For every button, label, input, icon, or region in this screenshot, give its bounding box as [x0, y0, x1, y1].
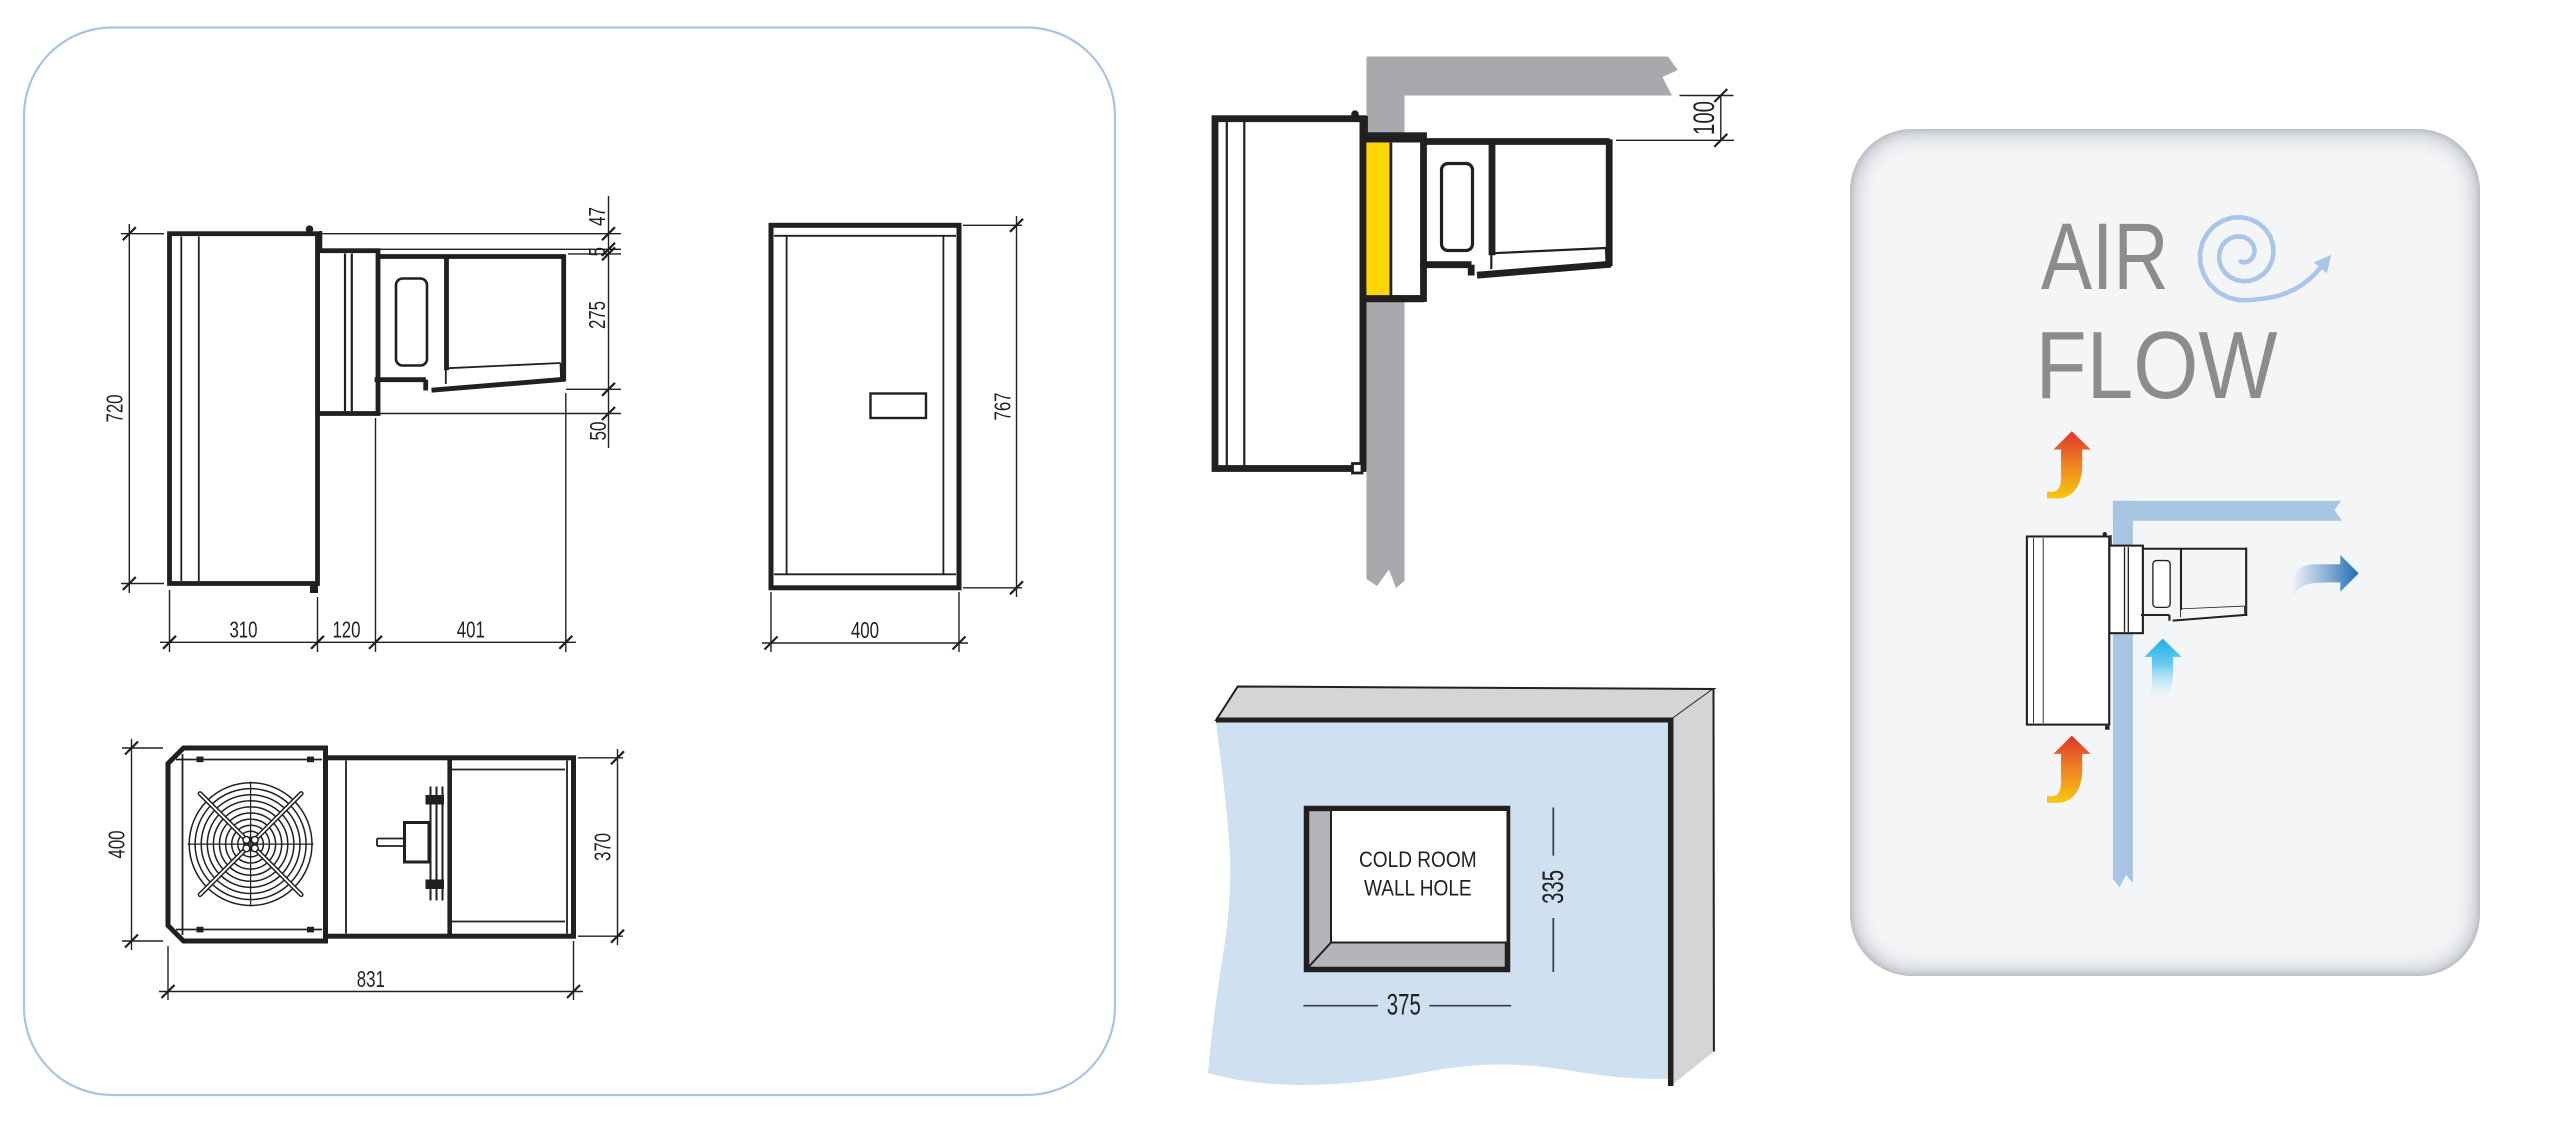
svg-text:767: 767: [990, 392, 1016, 420]
svg-text:310: 310: [229, 617, 257, 643]
svg-text:120: 120: [332, 617, 360, 643]
svg-text:47: 47: [584, 207, 610, 226]
svg-text:375: 375: [1387, 989, 1421, 1022]
svg-text:5: 5: [584, 247, 610, 256]
svg-text:370: 370: [590, 833, 616, 861]
svg-text:831: 831: [357, 966, 385, 992]
svg-text:100: 100: [1688, 101, 1721, 135]
svg-text:401: 401: [457, 617, 485, 643]
svg-text:720: 720: [102, 394, 128, 422]
svg-text:50: 50: [585, 422, 611, 441]
svg-text:275: 275: [584, 301, 610, 329]
svg-text:AIR: AIR: [2041, 204, 2169, 310]
svg-text:WALL HOLE: WALL HOLE: [1364, 875, 1472, 900]
svg-text:FLOW: FLOW: [2036, 312, 2278, 419]
svg-text:400: 400: [851, 617, 879, 643]
svg-text:335: 335: [1537, 870, 1570, 904]
svg-text:400: 400: [104, 830, 130, 858]
svg-text:COLD ROOM: COLD ROOM: [1359, 847, 1477, 872]
